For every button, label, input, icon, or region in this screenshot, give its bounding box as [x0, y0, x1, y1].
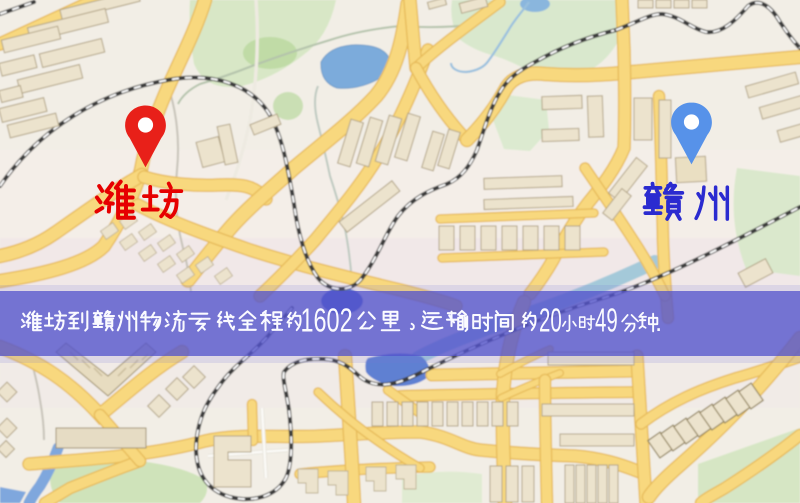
svg-text:.: . [655, 307, 662, 337]
svg-text:1602: 1602 [301, 303, 353, 340]
svg-text:20: 20 [539, 301, 562, 338]
svg-text:49: 49 [595, 301, 618, 338]
